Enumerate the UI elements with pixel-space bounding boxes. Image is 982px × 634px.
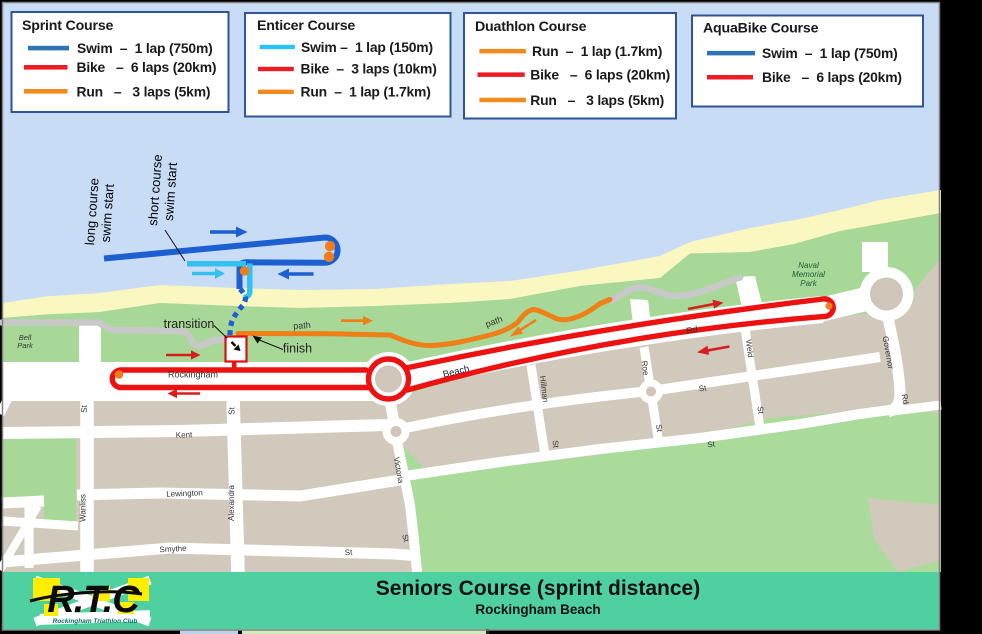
svg-text:Swim – 1 lap (750m): Swim – 1 lap (750m) xyxy=(762,45,898,61)
svg-text:Sprint Course: Sprint Course xyxy=(22,18,114,34)
svg-text:R.T.C: R.T.C xyxy=(47,579,140,621)
svg-text:Enticer Course: Enticer Course xyxy=(257,18,355,34)
svg-text:Run – 3 laps (5km): Run – 3 laps (5km) xyxy=(530,92,664,108)
svg-text:Bike – 3 laps (10km): Bike – 3 laps (10km) xyxy=(301,61,437,77)
svg-text:Alexandra: Alexandra xyxy=(227,484,236,521)
svg-text:short courseswim start: short courseswim start xyxy=(145,154,180,228)
svg-text:finish: finish xyxy=(283,342,312,356)
svg-text:transition: transition xyxy=(164,317,215,331)
svg-text:Park: Park xyxy=(800,279,817,288)
svg-text:Memorial: Memorial xyxy=(792,270,825,279)
svg-text:Lewington: Lewington xyxy=(166,488,203,498)
svg-text:Rd: Rd xyxy=(900,393,911,405)
svg-text:Duathlon Course: Duathlon Course xyxy=(475,19,587,35)
svg-text:Rockingham Triathlon Club: Rockingham Triathlon Club xyxy=(53,618,138,625)
svg-text:Smythe: Smythe xyxy=(159,544,187,554)
svg-text:path: path xyxy=(293,320,311,331)
svg-text:St: St xyxy=(345,548,354,557)
svg-text:Bike – 6 laps (20km): Bike – 6 laps (20km) xyxy=(530,67,670,83)
svg-text:long courseswim start: long courseswim start xyxy=(82,178,117,247)
svg-text:St: St xyxy=(80,404,89,412)
svg-text:AquaBike Course: AquaBike Course xyxy=(703,21,819,37)
svg-text:Swim – 1 lap (750m): Swim – 1 lap (750m) xyxy=(77,40,213,56)
svg-text:Run – 1 lap (1.7km): Run – 1 lap (1.7km) xyxy=(301,84,431,100)
svg-text:Rockingham Beach: Rockingham Beach xyxy=(475,602,600,617)
svg-text:Bike – 6 laps (20km): Bike – 6 laps (20km) xyxy=(762,69,902,85)
svg-text:Swim – 1 lap (150m): Swim – 1 lap (150m) xyxy=(301,39,433,55)
svg-text:Rockingham: Rockingham xyxy=(168,370,218,380)
svg-text:Bike – 6 laps (20km): Bike – 6 laps (20km) xyxy=(77,59,217,75)
svg-text:Park: Park xyxy=(17,341,34,350)
svg-text:Roe: Roe xyxy=(640,360,651,376)
svg-text:Run – 3 laps (5km): Run – 3 laps (5km) xyxy=(77,83,211,99)
svg-text:Run – 1 lap (1.7km): Run – 1 lap (1.7km) xyxy=(532,43,662,59)
svg-text:Seniors Course (sprint distanc: Seniors Course (sprint distance) xyxy=(376,577,700,600)
svg-text:Wanliss: Wanliss xyxy=(79,494,88,522)
svg-text:Kent: Kent xyxy=(176,430,194,440)
svg-text:Naval: Naval xyxy=(798,261,819,270)
svg-text:St: St xyxy=(228,406,237,414)
